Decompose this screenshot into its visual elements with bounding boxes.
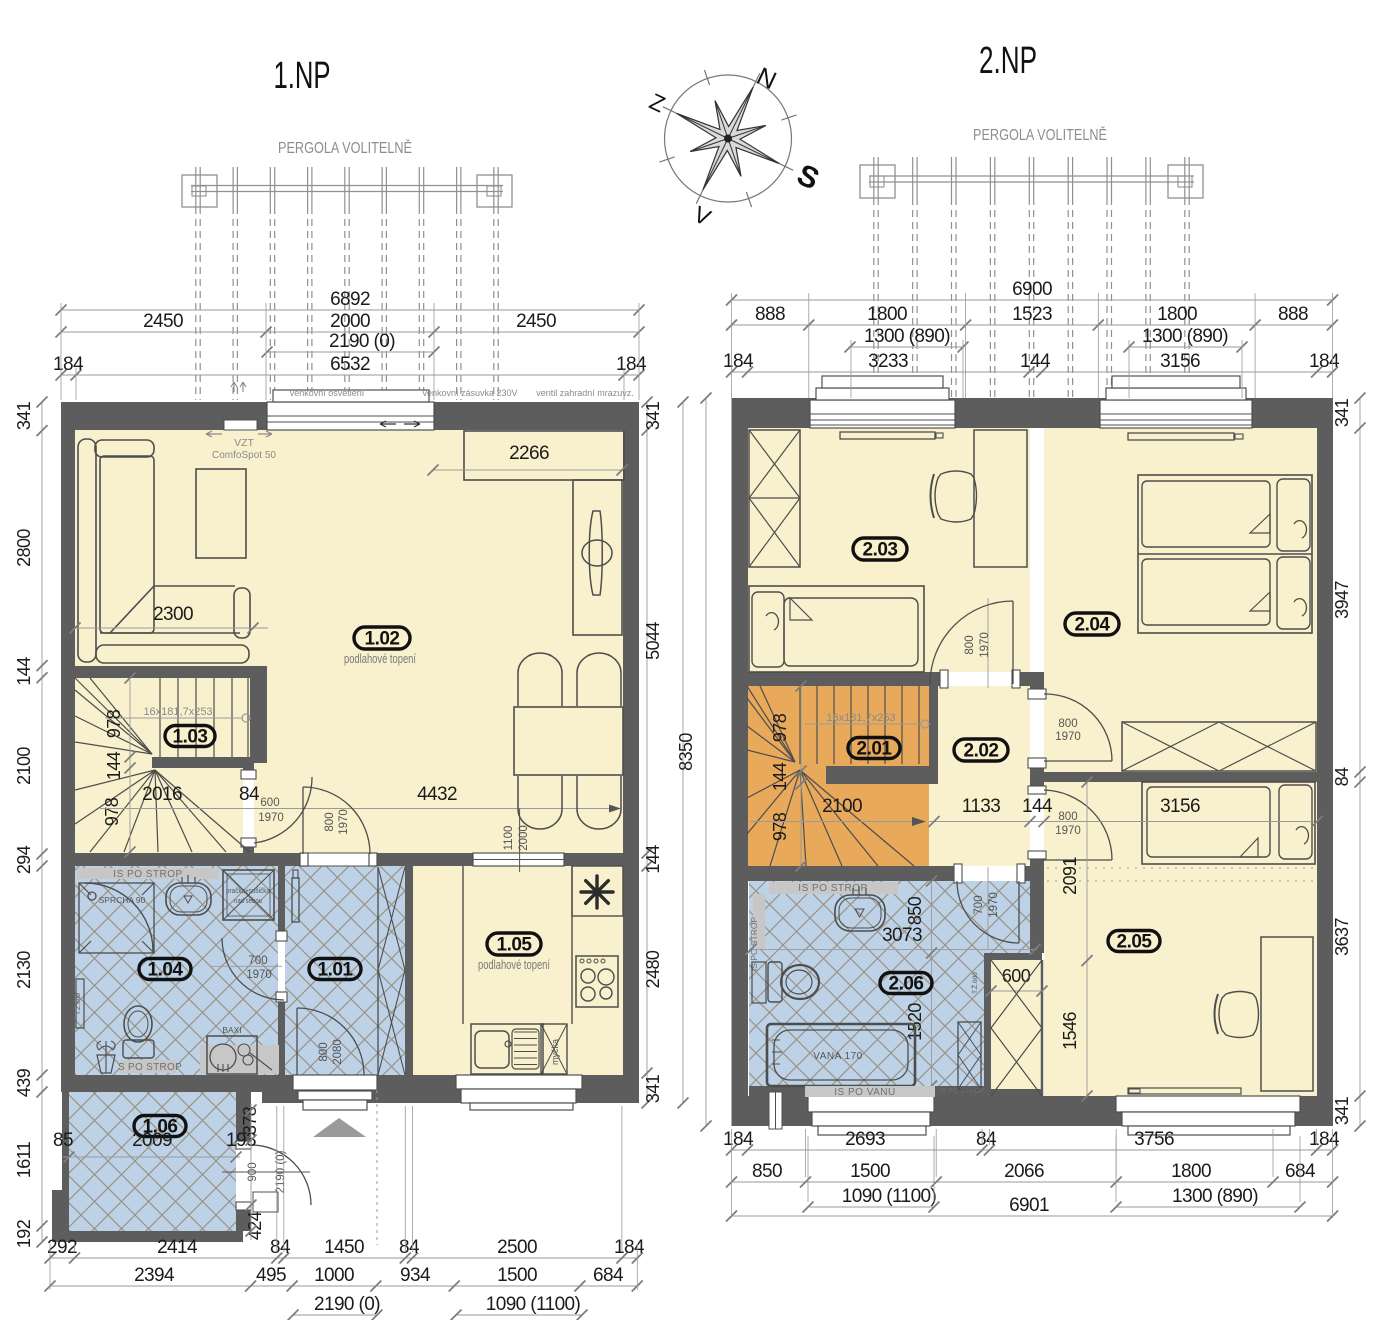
- svg-text:1.01: 1.01: [318, 960, 354, 981]
- svg-text:1546: 1546: [1060, 1012, 1080, 1050]
- svg-text:2500: 2500: [497, 1237, 537, 1258]
- svg-text:1090 (1100): 1090 (1100): [842, 1186, 937, 1207]
- svg-text:850: 850: [752, 1161, 782, 1182]
- svg-text:934: 934: [400, 1265, 431, 1286]
- svg-text:1970: 1970: [1055, 825, 1081, 837]
- svg-text:venkovní osvětlení: venkovní osvětlení: [290, 388, 365, 398]
- svg-text:978: 978: [102, 797, 122, 826]
- svg-text:84: 84: [399, 1237, 420, 1258]
- svg-text:2190 (0): 2190 (0): [329, 331, 395, 352]
- svg-text:700: 700: [973, 895, 985, 914]
- svg-text:978: 978: [104, 709, 124, 738]
- svg-text:1970: 1970: [979, 632, 991, 658]
- svg-text:1800: 1800: [1171, 1161, 1211, 1182]
- svg-text:978: 978: [770, 812, 790, 841]
- svg-text:84: 84: [270, 1237, 291, 1258]
- svg-text:684: 684: [593, 1265, 624, 1286]
- svg-text:3947: 3947: [1332, 581, 1352, 619]
- svg-text:850: 850: [905, 896, 925, 925]
- svg-text:192: 192: [14, 1219, 34, 1248]
- svg-text:2100: 2100: [822, 796, 862, 817]
- svg-text:439: 439: [14, 1068, 34, 1097]
- svg-text:2000: 2000: [518, 825, 530, 851]
- svg-text:3637: 3637: [1332, 918, 1352, 956]
- svg-text:3156: 3156: [1160, 351, 1200, 372]
- svg-text:341: 341: [1332, 1096, 1352, 1125]
- svg-text:PERGOLA VOLITELNĚ: PERGOLA VOLITELNĚ: [278, 138, 412, 157]
- svg-text:1.02: 1.02: [365, 629, 400, 650]
- svg-text:2130: 2130: [14, 951, 34, 989]
- svg-text:2.06: 2.06: [889, 974, 924, 995]
- svg-text:3073: 3073: [882, 925, 922, 946]
- svg-text:ComfoSpot 50: ComfoSpot 50: [212, 449, 276, 461]
- svg-text:424: 424: [245, 1211, 265, 1240]
- svg-text:2009: 2009: [132, 1130, 172, 1151]
- svg-text:2800: 2800: [14, 529, 34, 567]
- svg-text:podlahové topení: podlahové topení: [344, 652, 416, 666]
- svg-text:1090 (1100): 1090 (1100): [486, 1294, 581, 1315]
- svg-text:978: 978: [770, 713, 790, 742]
- svg-text:4432: 4432: [417, 784, 457, 805]
- svg-text:T.Ž.600: T.Ž.600: [970, 972, 979, 994]
- svg-text:1970: 1970: [988, 892, 1000, 918]
- svg-text:341: 341: [643, 1074, 663, 1103]
- svg-text:2.04: 2.04: [1075, 615, 1111, 636]
- svg-text:1800: 1800: [867, 304, 907, 325]
- svg-text:2016: 2016: [142, 784, 182, 805]
- svg-text:341: 341: [14, 401, 34, 430]
- svg-text:1000: 1000: [314, 1265, 354, 1286]
- svg-text:16x181,7x253: 16x181,7x253: [143, 706, 212, 718]
- svg-text:1970: 1970: [246, 969, 272, 981]
- svg-text:2480: 2480: [643, 950, 663, 988]
- svg-text:144: 144: [770, 762, 790, 791]
- svg-text:294: 294: [14, 845, 34, 874]
- svg-text:IS PO STROP: IS PO STROP: [798, 883, 867, 894]
- svg-text:84: 84: [239, 784, 260, 805]
- svg-text:ventil zahradní mrazuvz.: ventil zahradní mrazuvz.: [536, 388, 634, 398]
- svg-text:1611: 1611: [14, 1141, 34, 1178]
- svg-text:1300 (890): 1300 (890): [864, 326, 950, 347]
- svg-text:184: 184: [723, 1129, 754, 1150]
- svg-text:2091: 2091: [1060, 857, 1080, 895]
- svg-text:600: 600: [1002, 966, 1031, 986]
- svg-text:IS PO STROP: IS PO STROP: [749, 917, 759, 972]
- svg-text:IS PO STROP: IS PO STROP: [940, 1088, 985, 1095]
- svg-text:8350: 8350: [676, 733, 696, 771]
- svg-text:2080: 2080: [332, 1039, 344, 1065]
- svg-text:2000: 2000: [330, 311, 370, 332]
- svg-text:184: 184: [616, 354, 647, 375]
- svg-text:144: 144: [104, 751, 124, 780]
- svg-text:1.03: 1.03: [173, 727, 208, 748]
- svg-text:venkovní zásuvka 230V: venkovní zásuvka 230V: [422, 388, 517, 398]
- svg-text:PERGOLA VOLITELNĚ: PERGOLA VOLITELNĚ: [973, 125, 1107, 144]
- svg-text:600: 600: [260, 797, 279, 809]
- svg-text:184: 184: [723, 351, 754, 372]
- svg-text:2100: 2100: [14, 747, 34, 785]
- svg-text:1300 (890): 1300 (890): [1172, 1186, 1258, 1207]
- svg-text:1.04: 1.04: [148, 960, 184, 981]
- svg-text:SPRCHA 90: SPRCHA 90: [99, 895, 146, 905]
- svg-text:1500: 1500: [497, 1265, 537, 1286]
- svg-text:6901: 6901: [1009, 1195, 1049, 1216]
- svg-text:800: 800: [964, 635, 976, 654]
- svg-text:2450: 2450: [516, 311, 556, 332]
- svg-text:1133: 1133: [962, 796, 1000, 817]
- svg-text:684: 684: [1285, 1161, 1316, 1182]
- svg-text:2066: 2066: [1004, 1161, 1044, 1182]
- svg-text:5044: 5044: [643, 622, 663, 660]
- svg-text:2300: 2300: [153, 604, 193, 625]
- svg-text:VANA 170: VANA 170: [813, 1051, 862, 1062]
- svg-text:888: 888: [755, 304, 785, 325]
- svg-text:2266: 2266: [509, 443, 549, 464]
- svg-text:2.01: 2.01: [857, 739, 893, 760]
- svg-text:IS PO STROP: IS PO STROP: [113, 869, 182, 880]
- svg-text:800: 800: [324, 812, 336, 831]
- svg-text:800: 800: [1058, 718, 1077, 730]
- svg-text:1.05: 1.05: [497, 935, 533, 956]
- svg-text:84: 84: [1332, 767, 1352, 786]
- svg-text:2.05: 2.05: [1117, 932, 1153, 953]
- svg-text:800: 800: [318, 1042, 330, 1061]
- svg-text:900: 900: [247, 1162, 259, 1181]
- svg-text:3756: 3756: [1134, 1129, 1174, 1150]
- svg-text:184: 184: [614, 1237, 645, 1258]
- svg-text:2414: 2414: [157, 1237, 198, 1258]
- svg-text:144: 144: [643, 845, 663, 874]
- svg-text:2.NP: 2.NP: [979, 40, 1037, 82]
- svg-text:2450: 2450: [143, 311, 183, 332]
- svg-text:2394: 2394: [134, 1265, 175, 1286]
- svg-text:1523: 1523: [1012, 304, 1052, 325]
- svg-text:1800: 1800: [1157, 304, 1197, 325]
- svg-text:1100: 1100: [503, 826, 515, 851]
- svg-text:2693: 2693: [845, 1129, 885, 1150]
- svg-text:1.NP: 1.NP: [274, 55, 331, 97]
- svg-text:292: 292: [47, 1237, 77, 1258]
- svg-text:VZT: VZT: [234, 437, 254, 449]
- svg-text:1970: 1970: [258, 812, 284, 824]
- svg-text:1300 (890): 1300 (890): [1142, 326, 1228, 347]
- svg-text:184: 184: [1309, 351, 1340, 372]
- svg-text:6532: 6532: [330, 354, 370, 375]
- svg-text:144: 144: [1022, 796, 1053, 817]
- svg-text:1500: 1500: [850, 1161, 890, 1182]
- svg-text:184: 184: [1309, 1129, 1340, 1150]
- svg-text:888: 888: [1278, 304, 1308, 325]
- svg-text:184: 184: [53, 354, 84, 375]
- svg-text:85: 85: [53, 1130, 73, 1151]
- svg-text:341: 341: [1332, 398, 1352, 427]
- svg-text:2.02: 2.02: [964, 741, 999, 762]
- svg-text:podlahové topení: podlahové topení: [478, 958, 550, 972]
- svg-text:S PO STROP: S PO STROP: [118, 1062, 182, 1073]
- svg-text:144: 144: [14, 657, 34, 686]
- svg-text:6892: 6892: [330, 289, 370, 310]
- svg-text:1450: 1450: [324, 1237, 364, 1258]
- svg-text:341: 341: [643, 401, 663, 430]
- svg-text:1970: 1970: [1055, 731, 1081, 743]
- svg-text:495: 495: [256, 1265, 286, 1286]
- svg-text:2.03: 2.03: [863, 540, 898, 561]
- svg-text:3156: 3156: [1160, 796, 1200, 817]
- svg-text:144: 144: [1020, 351, 1051, 372]
- svg-text:pračka+sušička: pračka+sušička: [226, 886, 271, 895]
- svg-text:16x181,7x253: 16x181,7x253: [826, 712, 895, 724]
- svg-text:IS PO VANU: IS PO VANU: [834, 1087, 896, 1098]
- svg-text:T.Z.600: T.Z.600: [75, 993, 82, 1015]
- svg-text:3233: 3233: [868, 351, 908, 372]
- svg-text:2190 (0): 2190 (0): [314, 1294, 380, 1315]
- svg-text:myčka: myčka: [550, 1039, 560, 1065]
- svg-text:1970: 1970: [338, 809, 350, 835]
- svg-text:700: 700: [248, 955, 267, 967]
- svg-text:84: 84: [976, 1129, 997, 1150]
- svg-text:BAXI: BAXI: [222, 1025, 241, 1035]
- svg-text:6900: 6900: [1012, 279, 1052, 300]
- svg-text:nad sebou: nad sebou: [234, 896, 262, 905]
